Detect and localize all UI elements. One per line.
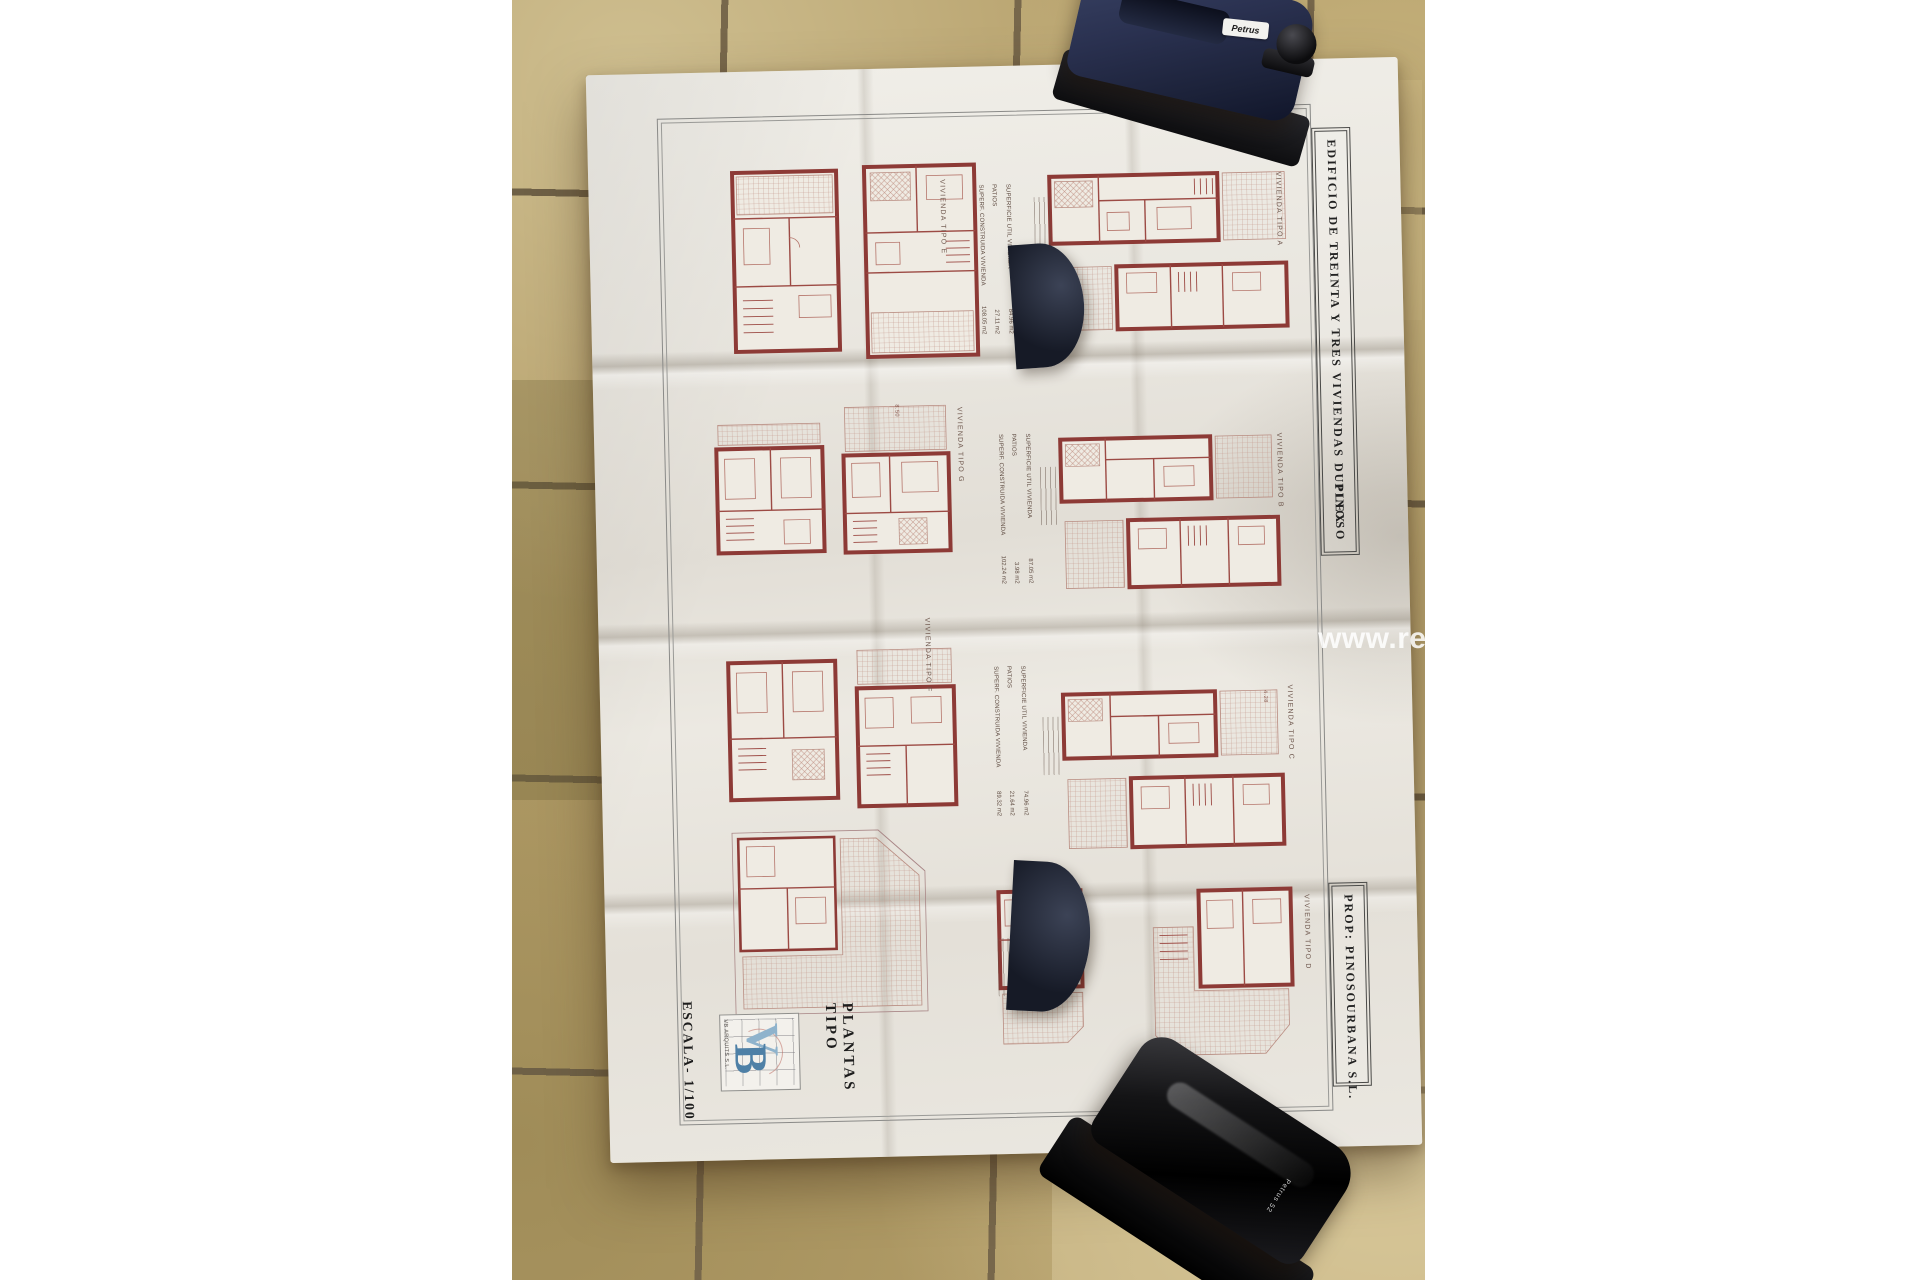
area-name: PATIOS bbox=[990, 184, 998, 206]
area-table-g: SUPERFICIE UTIL VIVIENDA87.05 m2 PATIOS3… bbox=[996, 433, 1033, 584]
title-strip: EDIFICIO DE TREINTA Y TRES VIVIENDAS DUP… bbox=[1314, 130, 1357, 553]
area-table-placeholder bbox=[1040, 467, 1057, 525]
plantas-line2: TIPO bbox=[821, 1003, 840, 1093]
floor-plan-e2 bbox=[860, 160, 982, 361]
floor-photo: EDIFICIO DE TREINTA Y TRES VIVIENDAS DUP… bbox=[512, 0, 1425, 1280]
floor-plan-b1 bbox=[1057, 432, 1275, 505]
floor-plan-b2 bbox=[1062, 514, 1283, 592]
area-name: SUPERF. CONSTRUIDA VIVIENDA bbox=[996, 434, 1005, 536]
hole-punch-slot bbox=[1117, 0, 1232, 46]
area-name: SUPERF. CONSTRUIDA VIVIENDA bbox=[991, 666, 1000, 768]
floor-plan-g1 bbox=[712, 419, 829, 558]
area-value: 3.98 m2 bbox=[1012, 562, 1019, 584]
area-table-f: SUPERFICIE UTIL VIVIENDA74.96 m2 PATIOS2… bbox=[991, 666, 1028, 817]
floor-plan-f2 bbox=[852, 644, 961, 811]
floor-plan-f1 bbox=[724, 657, 842, 805]
prop-text: PROP: PINOSOURBANA S.L. bbox=[1341, 894, 1361, 1100]
area-value: 21.64 m2 bbox=[1008, 791, 1016, 816]
firm-name: VB ARQUITS S.L. bbox=[722, 1019, 729, 1069]
prop-strip: PROP: PINOSOURBANA S.L. bbox=[1331, 885, 1368, 1084]
logo-letters: V B bbox=[722, 1013, 799, 1092]
floor-plan-g2 bbox=[838, 401, 954, 557]
floor-plan-c1 bbox=[1060, 687, 1282, 762]
floor-plan-e1 bbox=[728, 167, 844, 356]
floor-plan-c2 bbox=[1065, 772, 1289, 852]
architect-logo: V B VB ARQUITS S.L. bbox=[719, 1013, 801, 1092]
photo-page: EDIFICIO DE TREINTA Y TRES VIVIENDAS DUP… bbox=[0, 0, 1920, 1280]
scale-text: ESCALA- 1/100 bbox=[679, 1001, 698, 1121]
sheet-subtitle: PLANTAS TIPO bbox=[821, 1002, 857, 1093]
dimension-text: 4.28 bbox=[1262, 690, 1268, 703]
area-name: SUPERF. CONSTRUIDA VIVIENDA bbox=[976, 184, 985, 286]
area-name: PATIOS bbox=[1005, 666, 1013, 688]
floor-plan-corner bbox=[728, 825, 932, 1019]
plantas-line1: PLANTAS bbox=[838, 1002, 857, 1092]
area-table-placeholder bbox=[1042, 717, 1059, 775]
area-name: PATIOS bbox=[1010, 434, 1018, 456]
area-value: 74.96 m2 bbox=[1021, 790, 1029, 815]
plan-sheet: EDIFICIO DE TREINTA Y TRES VIVIENDAS DUP… bbox=[586, 57, 1422, 1163]
dimension-text: 8.50 bbox=[893, 404, 899, 417]
area-value: 87.05 m2 bbox=[1026, 558, 1034, 583]
area-value: 27.11 m2 bbox=[993, 309, 1001, 334]
area-value: 108.05 m2 bbox=[979, 306, 987, 335]
logo-letter-b: B bbox=[724, 1043, 778, 1075]
area-value: 102.24 m2 bbox=[999, 556, 1007, 585]
area-value: 89.32 m2 bbox=[994, 791, 1002, 816]
sheet-location: PINOSO bbox=[1331, 483, 1347, 541]
sheet-title: EDIFICIO DE TREINTA Y TRES VIVIENDAS DUP… bbox=[1323, 139, 1347, 524]
watermark: www.redpalmestate.com bbox=[1318, 622, 1425, 656]
